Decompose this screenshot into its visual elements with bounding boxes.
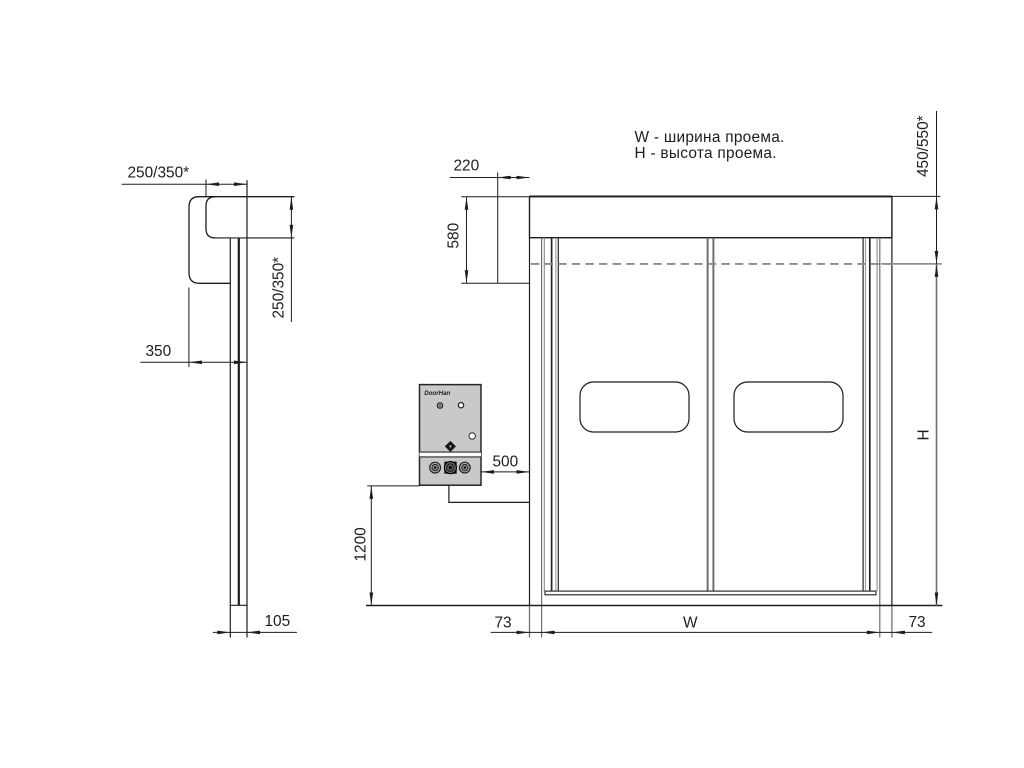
svg-text:73: 73 [495,615,512,632]
svg-text:250/350*: 250/350* [271,257,288,319]
svg-text:W - ширина проема.: W - ширина проема. [635,129,785,146]
svg-text:220: 220 [454,158,480,175]
svg-text:DoorHan: DoorHan [424,390,450,397]
svg-text:500: 500 [493,454,519,471]
svg-text:H - высота проема.: H - высота проема. [635,145,777,162]
svg-text:450/550*: 450/550* [915,115,932,177]
svg-text:73: 73 [909,614,926,631]
svg-text:105: 105 [265,613,291,630]
svg-text:580: 580 [446,223,463,249]
svg-text:350: 350 [146,343,172,360]
svg-text:250/350*: 250/350* [128,165,190,182]
svg-text:1200: 1200 [353,527,370,561]
svg-text:H: H [916,429,933,440]
svg-text:W: W [683,615,698,632]
